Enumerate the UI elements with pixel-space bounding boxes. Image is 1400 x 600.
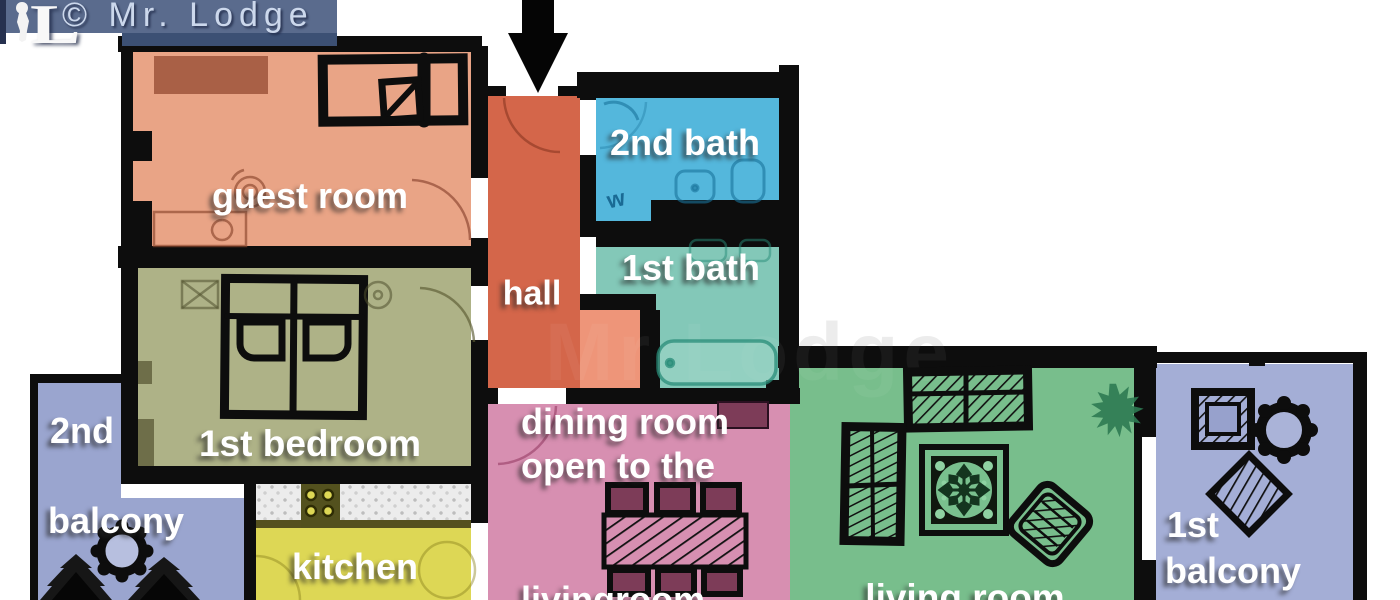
svg-text:w: w xyxy=(603,184,627,213)
